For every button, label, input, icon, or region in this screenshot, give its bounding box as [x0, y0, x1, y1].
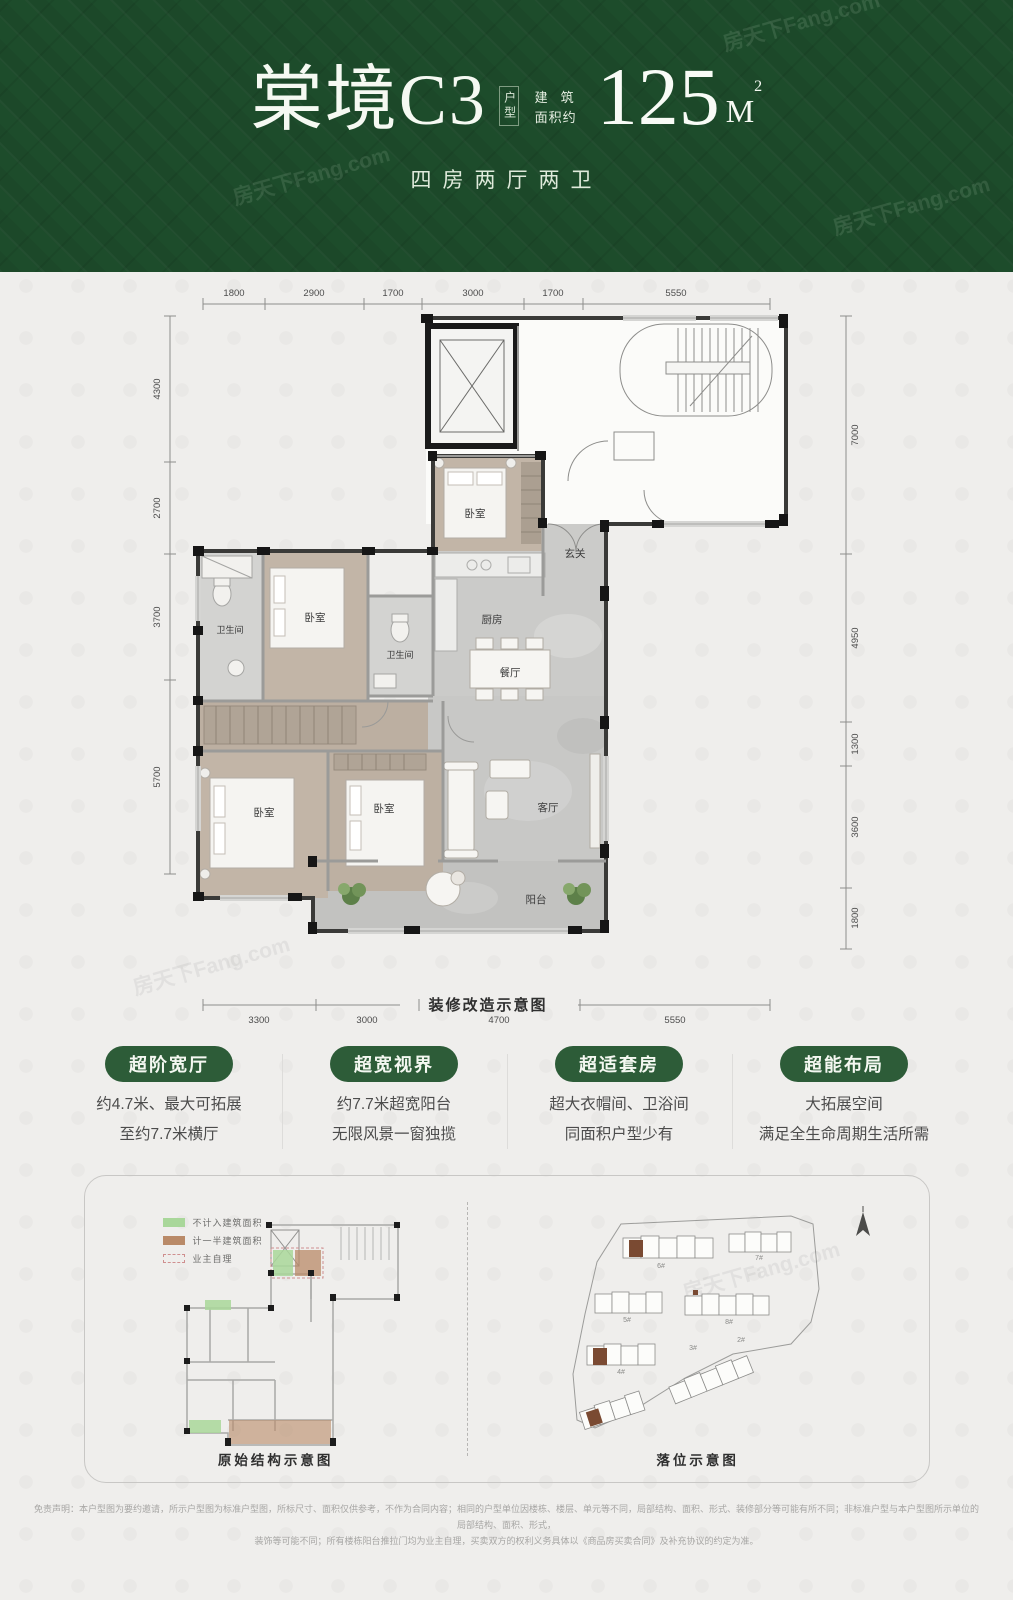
- title-row: 棠境C3 户型 建筑 面积约 125 M 2: [0, 0, 1013, 136]
- building-label: 4#: [617, 1369, 625, 1376]
- feature-pill: 超阶宽厅: [105, 1046, 233, 1082]
- dimension-label: 1700: [542, 288, 563, 299]
- feature-item: 超适套房 超大衣帽间、卫浴间 同面积户型少有: [507, 1040, 732, 1149]
- room-label-dining: 餐厅: [500, 666, 521, 679]
- mini-brown-area: [229, 1420, 331, 1444]
- feature-pill: 超宽视界: [330, 1046, 458, 1082]
- coffee-table: [486, 791, 508, 819]
- disclaimer: 免责声明：本户型图为要约邀请，所示户型图为标准户型图，所标尺寸、面积仅供参考，不…: [31, 1501, 983, 1550]
- room-label-kitchen: 厨房: [482, 613, 503, 626]
- feature-text: 约4.7米、最大可拓展: [61, 1092, 278, 1118]
- room-label-balcony: 阳台: [526, 893, 547, 906]
- dimension-label: 1800: [223, 288, 244, 299]
- bottom-card: 不计入建筑面积 计一半建筑面积 业主自理: [84, 1175, 930, 1483]
- right-caption: 落位示意图: [467, 1449, 929, 1469]
- building-row: [668, 1354, 753, 1404]
- type-label-box: 户型: [499, 86, 519, 126]
- highlight-unit: [629, 1240, 643, 1257]
- feature-item: 超能布局 大拓展空间 满足全生命周期生活所需: [732, 1040, 957, 1149]
- feature-item: 超宽视界 约7.7米超宽阳台 无限风景一窗独揽: [282, 1040, 507, 1149]
- area-prefix: 建筑 面积约: [535, 88, 587, 128]
- building-row: [685, 1290, 769, 1315]
- room-label-bedroom: 卧室: [305, 611, 326, 624]
- dimension-label: 3600: [850, 816, 861, 837]
- building-row: [623, 1236, 713, 1258]
- building-row: [578, 1391, 644, 1429]
- building-label: 2#: [737, 1337, 745, 1344]
- bed: [270, 568, 344, 648]
- dimension-label: 3300: [248, 1015, 269, 1026]
- area-superscript: 2: [754, 78, 762, 96]
- feature-text: 超大衣帽间、卫浴间: [511, 1092, 728, 1118]
- feature-item: 超阶宽厅 约4.7米、最大可拓展 至约7.7米横厅: [57, 1040, 282, 1149]
- building-label: 7#: [755, 1255, 763, 1262]
- dimension-label: 1300: [850, 733, 861, 754]
- page: 房天下Fang.com 房天下Fang.com 房天下Fang.com 棠境C3…: [0, 0, 1013, 1600]
- feature-pill: 超能布局: [780, 1046, 908, 1082]
- area-unit: M: [726, 93, 754, 130]
- dimension-label: 1700: [382, 288, 403, 299]
- card-divider: [467, 1202, 468, 1456]
- dimension-label: 3000: [462, 288, 483, 299]
- room-label-bath: 卫生间: [386, 649, 413, 660]
- feature-text: 无限风景一窗独揽: [286, 1122, 503, 1148]
- site-plan-svg: 6# 7# 5# 8# 4# 3# 2#: [533, 1194, 913, 1444]
- dimension-label: 3000: [356, 1015, 377, 1026]
- dimension-label: 4700: [488, 1015, 509, 1026]
- elevator-icon: [428, 326, 516, 446]
- bed: [346, 780, 424, 866]
- dimension-label: 5700: [152, 766, 163, 787]
- bed: [434, 458, 516, 538]
- dimension-label: 7000: [850, 424, 861, 445]
- bed: [200, 768, 294, 879]
- area-value: 125: [597, 58, 720, 136]
- highlight-unit: [593, 1348, 607, 1365]
- mini-stairs-icon: [341, 1227, 389, 1260]
- plan-caption: 装修改造示意图: [427, 996, 547, 1014]
- original-structure-svg: [145, 1210, 445, 1458]
- feature-text: 大拓展空间: [736, 1092, 953, 1118]
- area-prefix-line2: 面积约: [535, 108, 587, 128]
- building-row: [587, 1344, 655, 1365]
- room-label-bedroom: 卧室: [254, 806, 275, 819]
- building-row: [729, 1232, 791, 1252]
- building-label: 6#: [657, 1263, 665, 1270]
- room-label-living: 客厅: [538, 801, 559, 814]
- feature-text: 至约7.7米横厅: [61, 1122, 278, 1148]
- mini-green-area: [189, 1420, 221, 1433]
- area-prefix-line1: 建筑: [535, 88, 587, 108]
- disclaimer-line1: 免责声明：本户型图为要约邀请，所示户型图为标准户型图，所标尺寸、面积仅供参考，不…: [31, 1501, 983, 1533]
- mini-green-area: [205, 1300, 231, 1310]
- floorplan-section: 卧室 玄关 厨房 餐厅 卫生间 卫生间 卧室 卧室 卧室 客厅 阳台: [138, 286, 878, 1034]
- dimension-label: 5550: [665, 288, 686, 299]
- disclaimer-line2: 装饰等可能不同；所有楼栋阳台推拉门均为业主自理，买卖双方的权利义务具体以《商品房…: [31, 1533, 983, 1549]
- feature-pill: 超适套房: [555, 1046, 683, 1082]
- dimension-label: 3700: [152, 606, 163, 627]
- room-label-bath: 卫生间: [216, 624, 243, 635]
- dimension-label: 2900: [303, 288, 324, 299]
- feature-row: 超阶宽厅 约4.7米、最大可拓展 至约7.7米横厅 超宽视界 约7.7米超宽阳台…: [57, 1040, 957, 1149]
- feature-text: 同面积户型少有: [511, 1122, 728, 1148]
- building-label: 5#: [623, 1317, 631, 1324]
- wardrobe: [204, 706, 356, 744]
- header-banner: 房天下Fang.com 房天下Fang.com 房天下Fang.com 棠境C3…: [0, 0, 1013, 272]
- north-arrow-icon: [856, 1206, 870, 1236]
- room-label-bedroom: 卧室: [374, 802, 395, 815]
- floorplan-svg: 卧室 玄关 厨房 餐厅 卫生间 卫生间 卧室 卧室 卧室 客厅 阳台: [138, 286, 878, 1034]
- room-label-foyer: 玄关: [565, 547, 586, 560]
- building-label: 3#: [689, 1345, 697, 1352]
- building-row: [595, 1292, 662, 1313]
- dimension-label: 2700: [152, 497, 163, 518]
- highlight-unit: [693, 1290, 698, 1295]
- page-title: 棠境C3: [251, 64, 487, 136]
- dimension-label: 4950: [850, 627, 861, 648]
- layout-subtitle: 四房两厅两卫: [0, 164, 1013, 194]
- left-caption: 原始结构示意图: [85, 1449, 467, 1469]
- dimension-label: 1800: [850, 907, 861, 928]
- dimension-label: 4300: [152, 378, 163, 399]
- tv-console: [590, 754, 600, 848]
- dimension-label: 5550: [664, 1015, 685, 1026]
- mini-green-area: [273, 1250, 293, 1276]
- feature-text: 满足全生命周期生活所需: [736, 1122, 953, 1148]
- room-label-bedroom: 卧室: [465, 507, 486, 520]
- feature-text: 约7.7米超宽阳台: [286, 1092, 503, 1118]
- building-label: 8#: [725, 1319, 733, 1326]
